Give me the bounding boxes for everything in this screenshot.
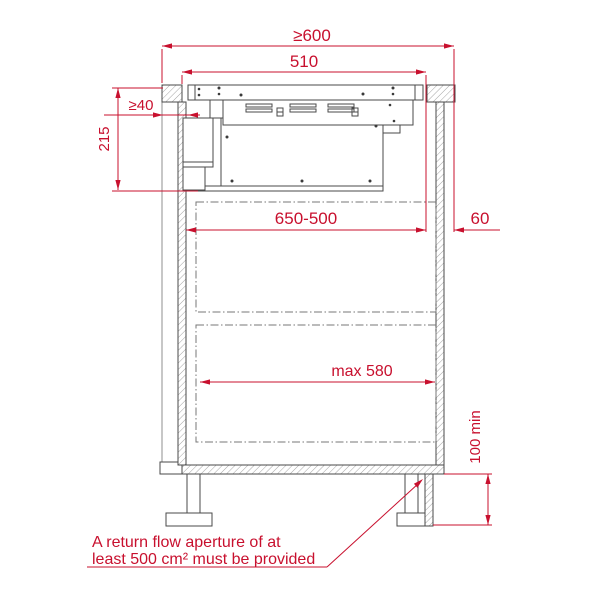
- left-duct-upper: [183, 118, 213, 167]
- left-foot-base: [166, 513, 212, 526]
- worktop-right-section: [427, 85, 455, 102]
- housing-bottom-lip: [196, 186, 383, 191]
- left-foot-stem: [187, 474, 200, 513]
- dim-front-distance-label: 60: [471, 209, 490, 228]
- dim-plinth-min-label: 100 min: [467, 410, 484, 463]
- bottom-panel: [182, 465, 444, 474]
- drawer-outline-lower: [196, 325, 436, 442]
- right-foot-base: [397, 513, 425, 526]
- dim-cutout-label: 510: [290, 52, 318, 71]
- arrowhead: [416, 227, 426, 232]
- dimension-clearance-range: 650-500: [186, 209, 426, 233]
- dim-drawer-max-label: max 580: [331, 363, 392, 380]
- installation-drawing: ≥600 510 ≥40 215 650-500 60 m: [0, 0, 600, 600]
- arrowhead: [115, 180, 120, 190]
- arrowhead: [454, 227, 464, 232]
- left-mounting-bracket: [210, 100, 223, 118]
- arrowhead: [485, 474, 490, 484]
- worktop-left-section: [162, 85, 182, 102]
- note-line-2: least 500 cm² must be provided: [92, 551, 315, 568]
- diagram-canvas: ≥600 510 ≥40 215 650-500 60 m: [0, 0, 600, 600]
- dim-worktop-min-label: ≥600: [293, 26, 331, 45]
- arrowhead: [182, 69, 192, 74]
- front-panel: [436, 102, 444, 465]
- arrowhead: [115, 88, 120, 98]
- arrowhead: [416, 69, 426, 74]
- dimension-drawer-max: max 580: [200, 363, 435, 385]
- arrowhead: [200, 379, 210, 384]
- note-line-1: A return flow aperture of at: [92, 534, 281, 551]
- left-duct-lower: [183, 167, 205, 190]
- dim-rear-clearance-label: ≥40: [129, 97, 154, 114]
- arrowhead: [186, 227, 196, 232]
- arrowhead: [425, 379, 435, 384]
- motor-housing: [221, 118, 383, 186]
- dim-install-depth-label: 215: [96, 126, 113, 151]
- hob-appliance: [183, 85, 423, 191]
- hob-top-plate: [188, 85, 423, 100]
- dim-clearance-range-label: 650-500: [275, 209, 337, 228]
- plinth-panel: [425, 474, 433, 526]
- arrowhead: [444, 43, 454, 48]
- arrowhead: [188, 112, 198, 117]
- arrowhead: [162, 43, 172, 48]
- dimension-front-distance: 60: [454, 209, 500, 233]
- note-return-flow: A return flow aperture of at least 500 c…: [87, 479, 423, 568]
- arrowhead: [485, 515, 490, 525]
